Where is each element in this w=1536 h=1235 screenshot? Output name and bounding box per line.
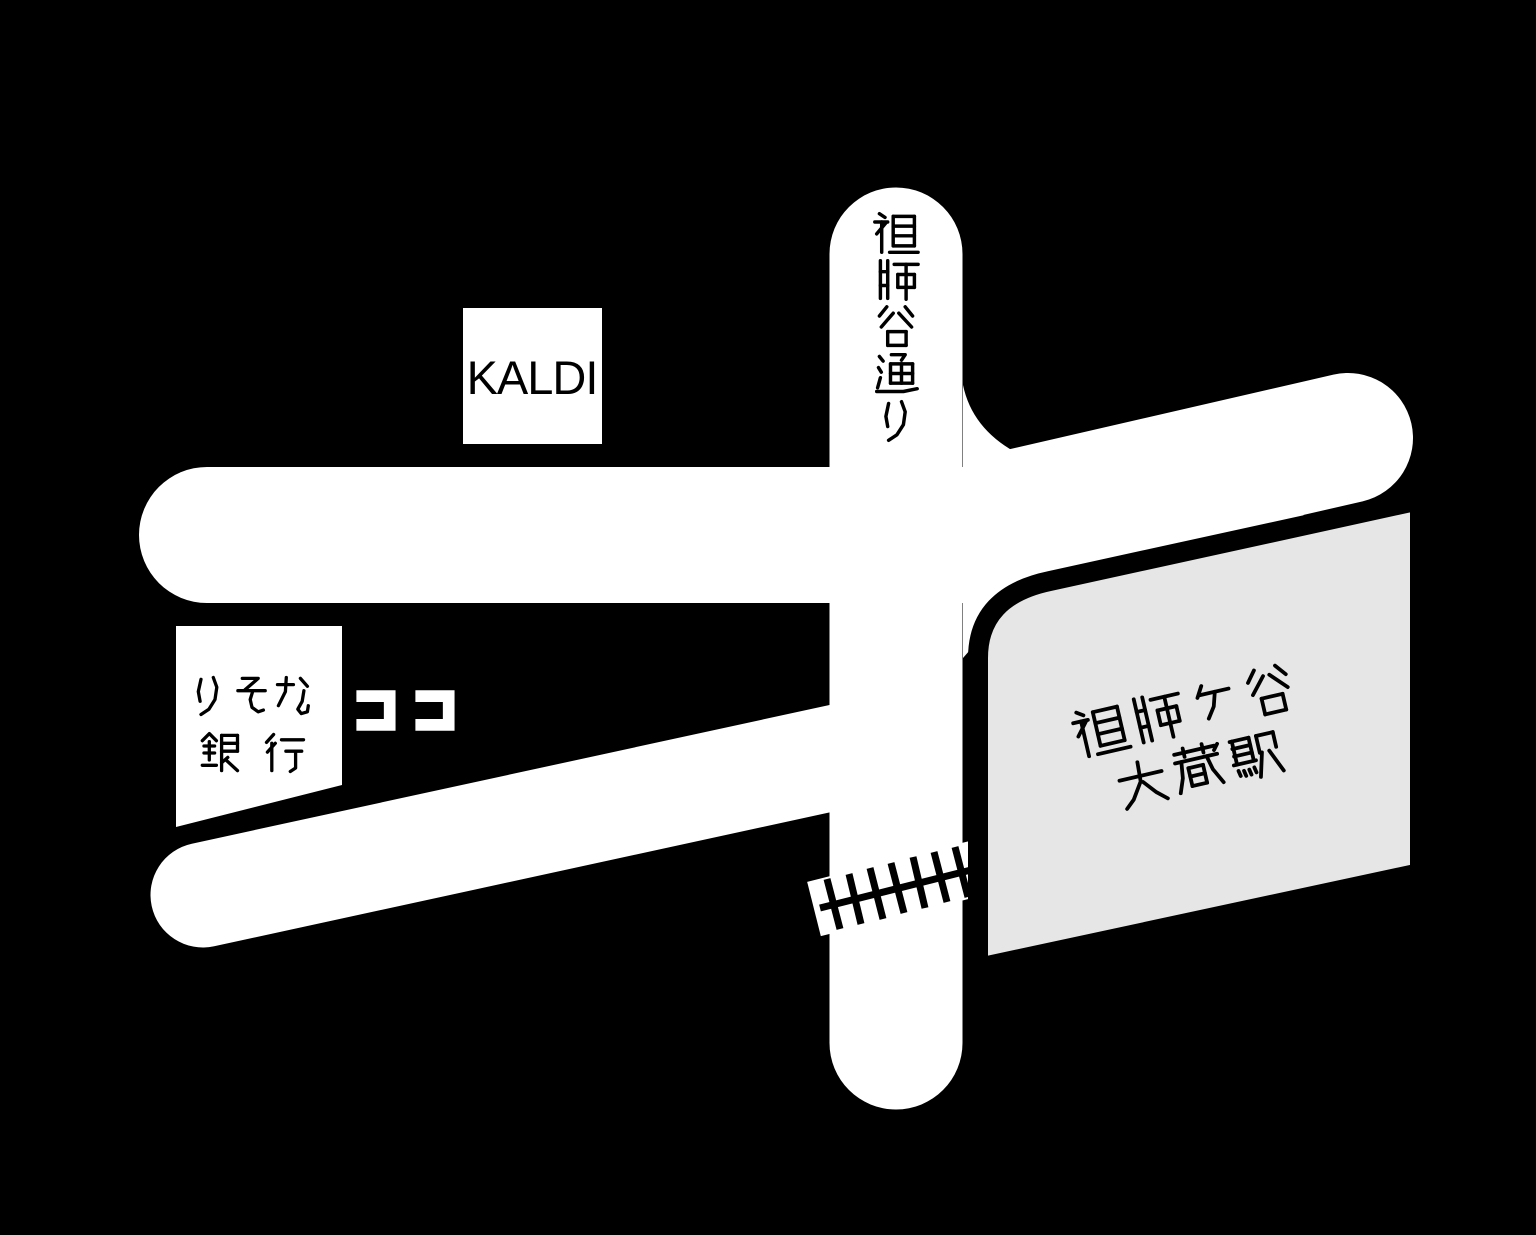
glyph-stroke bbox=[1137, 710, 1145, 712]
kaldi-label: KALDI bbox=[467, 351, 598, 404]
glyph-stroke bbox=[1202, 744, 1204, 752]
access-map: KALDI 祖師谷通り りそな 銀 行 ココ 祖師ヶ谷 大蔵駅 bbox=[0, 0, 1536, 1235]
map-canvas: KALDI bbox=[0, 0, 1536, 1235]
glyph-stroke bbox=[1239, 771, 1241, 776]
glyph-stroke bbox=[1183, 748, 1185, 756]
glyph-stroke bbox=[1249, 769, 1251, 774]
glyph-stroke bbox=[1140, 726, 1148, 728]
glyph-stroke bbox=[1254, 767, 1256, 772]
glyph-stroke bbox=[1244, 771, 1246, 776]
glyph-stroke bbox=[879, 368, 882, 373]
